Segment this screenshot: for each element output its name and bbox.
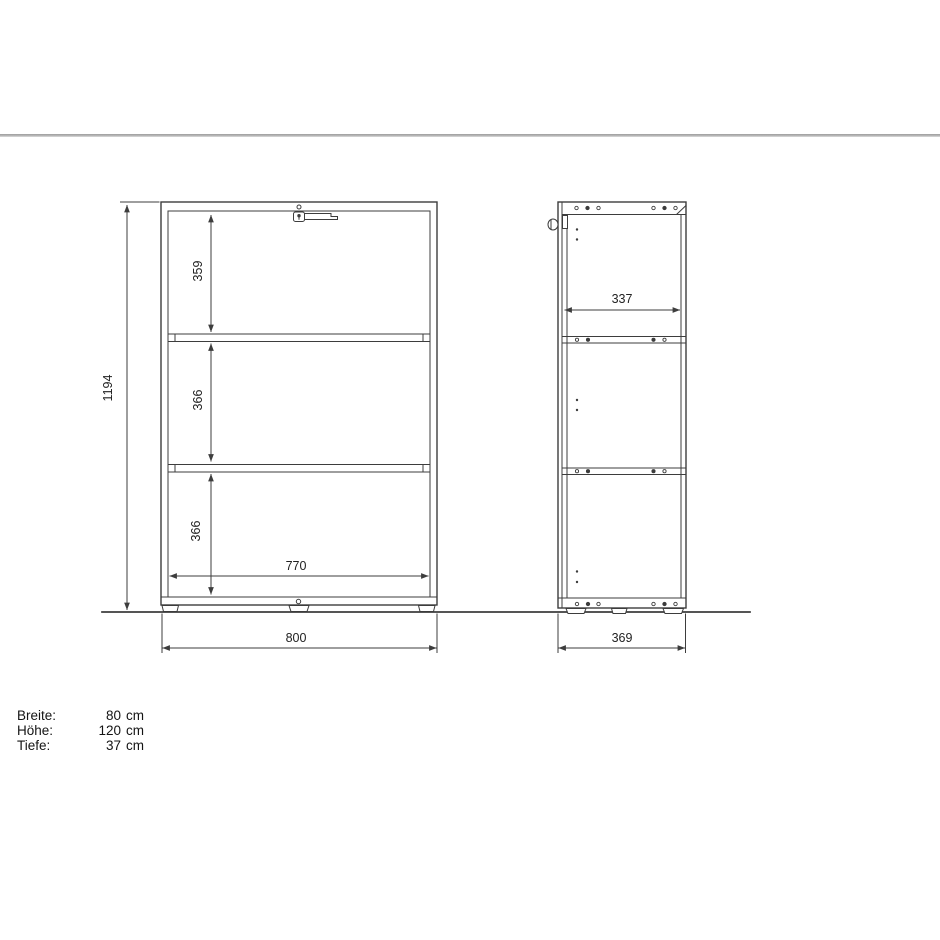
dim-text-outer-width: 800 — [286, 631, 307, 645]
front-feet — [162, 606, 435, 612]
dim-text-total-height: 1194 — [101, 375, 115, 402]
dim-text-outer-depth: 369 — [612, 631, 633, 645]
dim-text-comp-top: 359 — [191, 261, 205, 282]
product-dimensions-list: Breite: 80 cm Höhe: 120 cm Tiefe: 37 cm — [17, 708, 144, 754]
side-outer-body — [558, 202, 686, 608]
spec-row-depth: Tiefe: 37 cm — [17, 738, 144, 753]
side-foot-back — [663, 609, 684, 614]
spec-unit-depth: cm — [126, 738, 144, 753]
side-foot-front — [566, 609, 586, 614]
spec-row-width: Breite: 80 cm — [17, 708, 144, 723]
spec-label-depth: Tiefe: — [17, 738, 79, 753]
spec-value-width: 80 — [79, 708, 121, 723]
spec-value-depth: 37 — [79, 738, 121, 753]
front-foot-middle — [289, 606, 309, 612]
spec-unit-width: cm — [126, 708, 144, 723]
spec-row-height: Höhe: 120 cm — [17, 723, 144, 738]
cabinet-technical-drawing: 1194 359 366 366 770 800 — [0, 0, 940, 700]
front-foot-left — [162, 606, 179, 612]
dim-text-inner-depth: 337 — [612, 292, 633, 306]
spec-label-height: Höhe: — [17, 723, 79, 738]
spec-value-height: 120 — [79, 723, 121, 738]
dim-text-comp-middle: 366 — [191, 390, 205, 411]
spec-unit-height: cm — [126, 723, 144, 738]
dim-text-inner-width: 770 — [286, 559, 307, 573]
dim-text-comp-bottom: 366 — [189, 521, 203, 542]
side-view — [548, 202, 686, 614]
side-feet — [566, 609, 684, 614]
front-foot-right — [419, 606, 436, 612]
side-foot-middle — [612, 609, 628, 614]
spec-label-width: Breite: — [17, 708, 79, 723]
